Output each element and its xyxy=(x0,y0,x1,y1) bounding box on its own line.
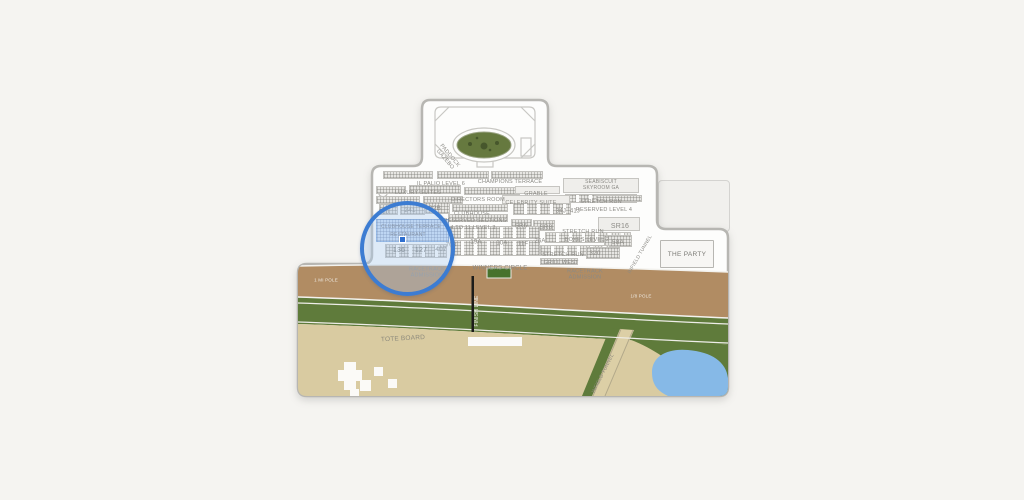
label-infield-tunnel-lower: INFIELD TUNNEL xyxy=(592,353,617,394)
label-reserved-sections: RESERVED SECTIONS xyxy=(443,218,506,224)
label-sec-sr16: SR16 xyxy=(611,223,629,231)
label-seabiscuit-skyroom: SEABISCUIT SKYROOM GA xyxy=(583,180,619,192)
label-tote-board: TOTE BOARD xyxy=(381,334,425,344)
label-sec-34j: 34J xyxy=(556,208,566,215)
label-sec-58a: 58A xyxy=(612,239,624,247)
label-stretch-run-lower: STRETCH RUN xyxy=(542,252,584,258)
label-finish-line: FINISH LINE xyxy=(475,295,481,326)
the-party-section[interactable]: THE PARTY xyxy=(660,240,714,268)
label-clubhouse: CLUBHOUSE xyxy=(454,211,490,217)
label-boxes-level-2: BOXES LEVEL 2 xyxy=(565,237,610,243)
label-stretch-run-mid: STRETCH RUN xyxy=(562,229,604,235)
selection-highlight-circle xyxy=(360,201,455,296)
seat-location-marker[interactable] xyxy=(399,236,406,243)
label-sec-41j: 41J xyxy=(570,208,580,215)
label-stretch-run-upper: STRETCH RUN xyxy=(580,199,622,205)
label-pole-marker-left: 1 MI POLE xyxy=(314,277,338,282)
label-reserved-level-4: RESERVED LEVEL 4 xyxy=(576,207,632,213)
label-sec-sr8: SR8 xyxy=(539,224,552,232)
label-paddock-gazebo: PADDOCK GAZEBO xyxy=(433,143,461,173)
label-champions-terrace: CHAMPIONS TERRACE xyxy=(478,179,542,185)
label-winners-circle: WINNERS CIRCLE xyxy=(473,265,528,272)
label-sec-sr6: SR6 xyxy=(515,223,527,230)
label-luxury-suites: LUXURY SUITES xyxy=(395,190,441,196)
label-racetrack-admission-right: RACETRACK ADMISSION xyxy=(567,269,603,282)
label-directors-room: DIRECTORS ROOM xyxy=(451,197,505,203)
label-sec-26a: 26A xyxy=(534,238,545,245)
label-infield-tunnel-upper: INFIELD TUNNEL xyxy=(628,235,655,275)
label-four-to-11-level-3: 4 TO 11 LEVEL 3 xyxy=(450,225,495,231)
label-pole-marker-right: 1/8 POLE xyxy=(630,293,651,298)
label-celebrity-suite: CELEBRITY SUITE xyxy=(505,200,556,206)
label-il-palio-level-6: IL PALIO LEVEL 6 xyxy=(417,181,465,187)
label-sec-11f: 11F xyxy=(518,241,529,248)
label-grable: GRABLE xyxy=(524,191,548,197)
label-grill-west: GRILL WEST xyxy=(543,260,578,266)
the-party-label: THE PARTY xyxy=(668,251,707,258)
labels-layer: PADDOCK GAZEBOIL PALIO LEVEL 6CHAMPIONS … xyxy=(0,0,1024,500)
label-sec-320: 320 xyxy=(589,250,600,258)
label-sec-10a: 10A xyxy=(496,240,507,247)
seat-map-viewer: PADDOCK GAZEBOIL PALIO LEVEL 6CHAMPIONS … xyxy=(0,0,1024,500)
label-sec-19a: 19A xyxy=(470,239,481,246)
